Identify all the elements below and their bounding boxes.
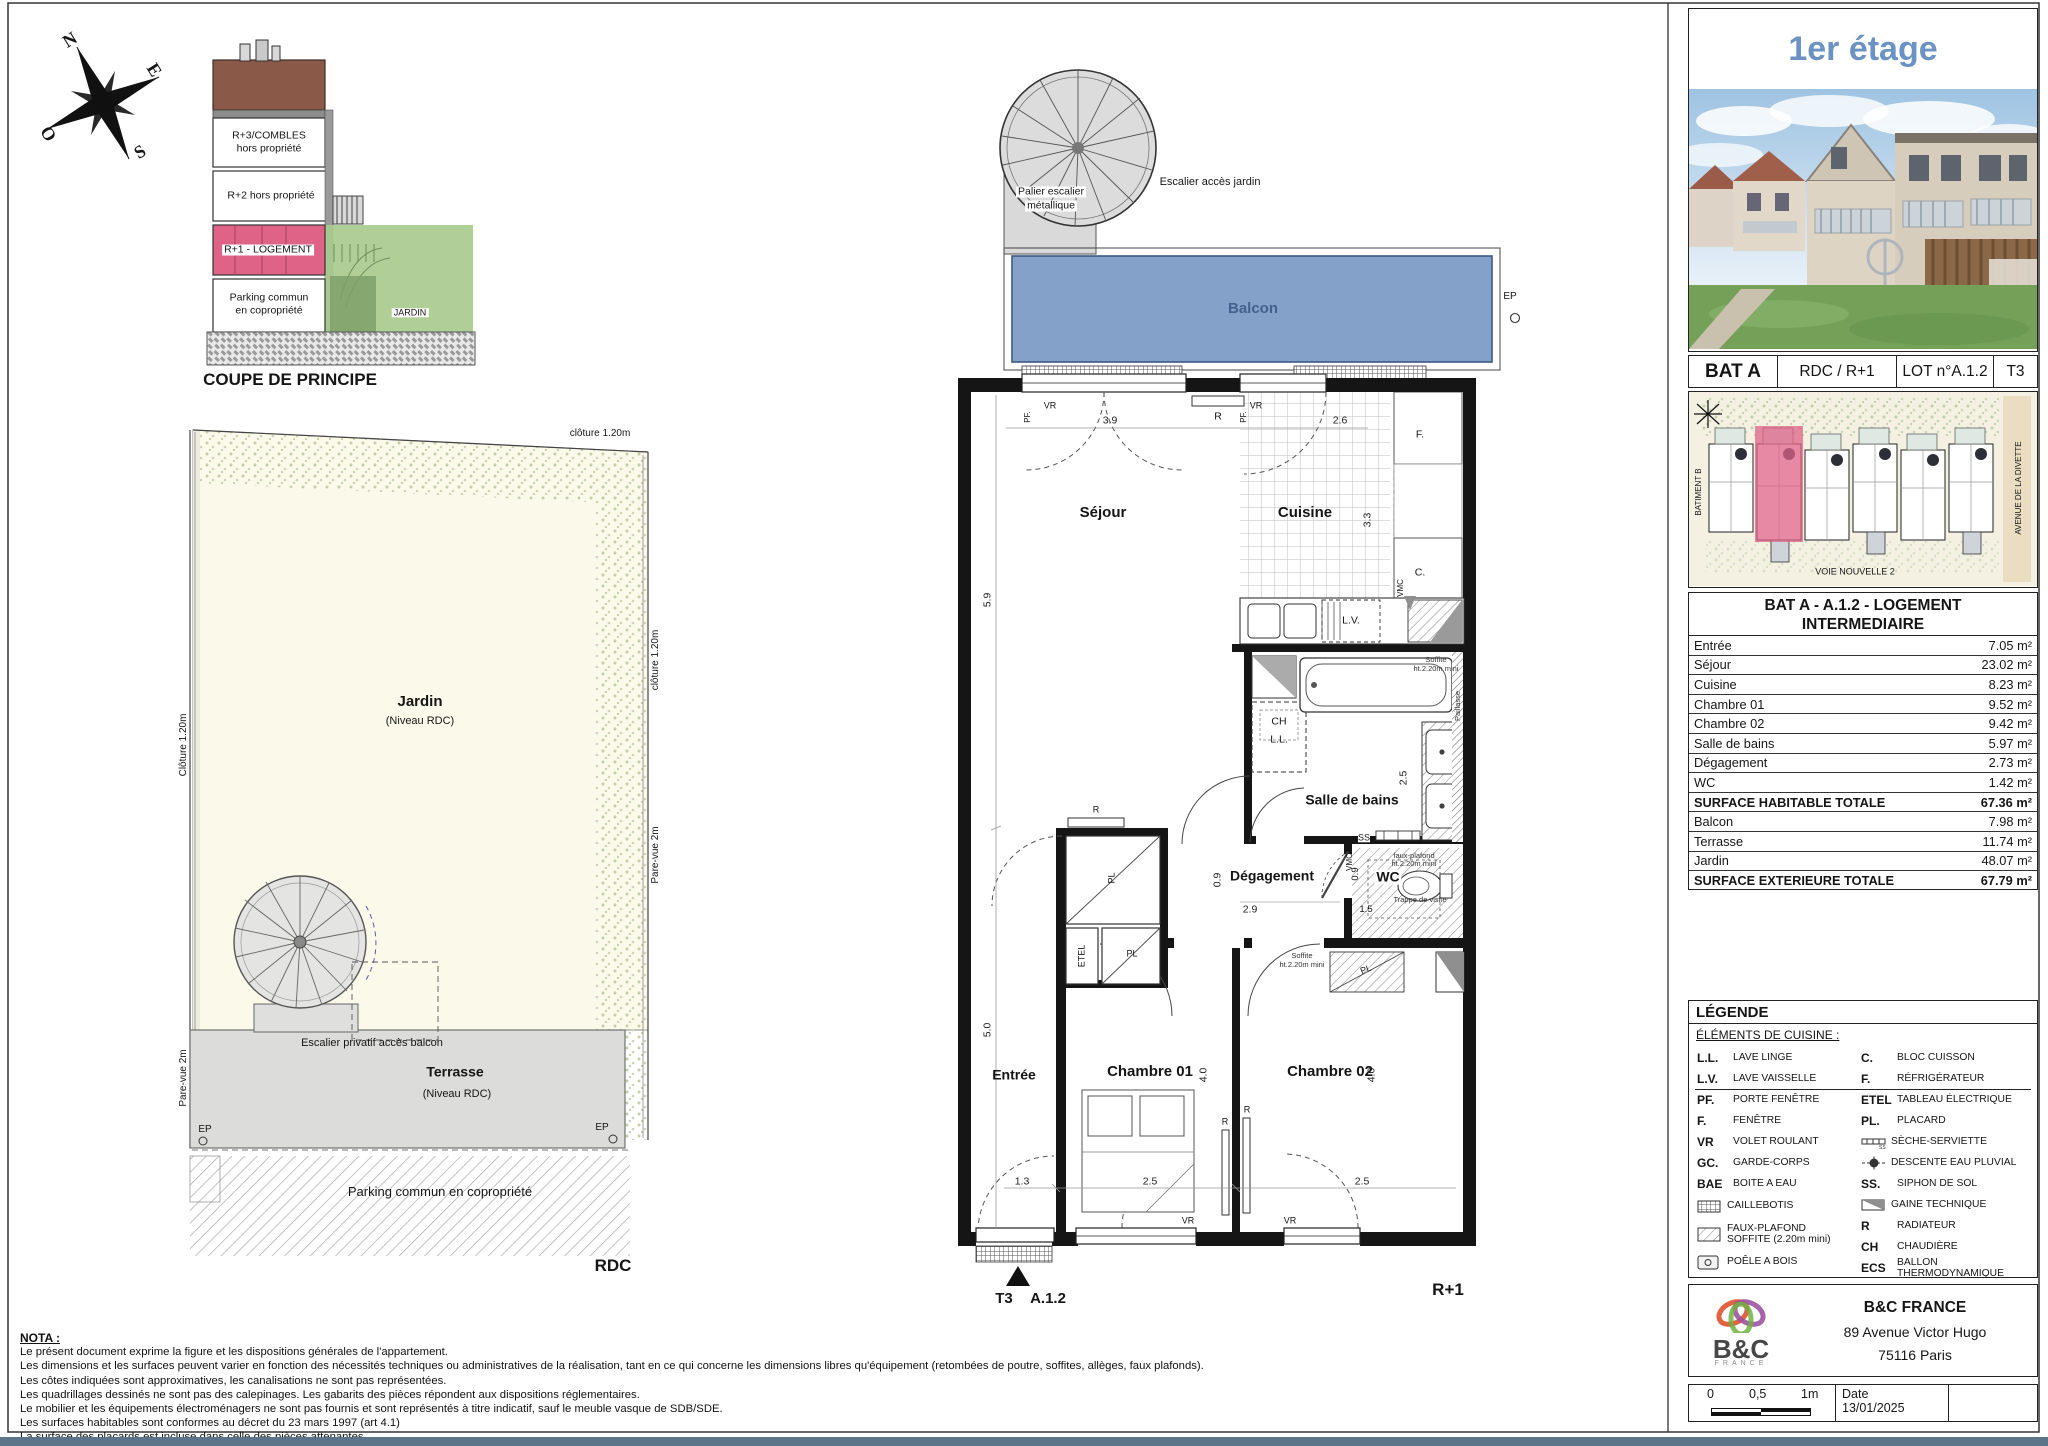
plan-ep-label: EP: [1503, 292, 1516, 303]
legend-abbr: F.: [1861, 1072, 1897, 1086]
legend-abbr: PF.: [1697, 1093, 1733, 1107]
legend-abbr: ECS: [1861, 1261, 1897, 1275]
plan-balcon-label: Balcon: [1228, 301, 1278, 317]
room-cuisine: Cuisine: [1278, 505, 1332, 521]
dim-cuisine-w: 2.6: [1333, 415, 1348, 426]
garden-ep-left: EP: [198, 1125, 211, 1136]
table-row: Dégagement2.73 m²: [1689, 754, 2037, 774]
dim-entree-h: 5.0: [982, 1023, 993, 1038]
dim-ch2-h: 4.0: [1366, 1068, 1377, 1083]
scale-bar-cell: 0 0,5 1m: [1689, 1385, 1836, 1421]
caillebotis-icon: [1697, 1200, 1727, 1213]
empty-cell: [1949, 1385, 2037, 1421]
table-row: Chambre 019.52 m²: [1689, 695, 2037, 715]
site-plan-box: BATIMENT B AVENUE DE LA DIVETTE VOIE NOU…: [1688, 391, 2038, 588]
dim-ch1-h: 4.0: [1198, 1068, 1209, 1083]
legend-item: DESCENTE EAU PLUVIAL: [1861, 1152, 2033, 1173]
garden-jardin-title: Jardin: [397, 694, 442, 710]
table-row: Jardin48.07 m²: [1689, 852, 2037, 872]
coupe-parking-line2: en copropriété: [235, 305, 302, 316]
row-value: 67.36 m²: [1981, 795, 2032, 810]
company-box: B&C FRANCE B&C FRANCE 89 Avenue Victor H…: [1688, 1284, 2038, 1377]
company-city: 75116 Paris: [1793, 1347, 2037, 1363]
table-row-total-exterieure: SURFACE EXTERIEURE TOTALE67.79 m²: [1689, 871, 2037, 891]
bc-logo-sub: FRANCE: [1689, 1360, 1793, 1367]
tag-vmc-wc: VMC: [1346, 853, 1354, 871]
tag-r-ch02: R: [1244, 1105, 1251, 1114]
room-chambre01: Chambre 01: [1107, 1064, 1193, 1080]
legend-item: PF.PORTE FENÊTRE: [1697, 1089, 1857, 1110]
garden-terrasse-sub: (Niveau RDC): [423, 1089, 491, 1101]
legend-title: LÉGENDE: [1689, 1001, 2037, 1024]
legend-abbr: VR: [1697, 1135, 1733, 1149]
coupe-r3-line2: hors propriété: [237, 143, 302, 154]
garden-terrasse-title: Terrasse: [426, 1065, 483, 1080]
type-label: T3: [1994, 356, 2037, 387]
legend-label: PORTE FENÊTRE: [1733, 1094, 1819, 1105]
tag-lv: L.V.: [1342, 615, 1360, 626]
scale-05: 0,5: [1749, 1387, 1766, 1401]
compass-icon: [47, 47, 159, 159]
plan-palier-line1: Palier escalier: [1016, 186, 1086, 197]
nota-block: NOTA : Le présent document exprime la fi…: [20, 1331, 1650, 1445]
tag-vmc-cuisine: VMC: [1397, 579, 1405, 597]
garden-parevue-left: Pare-vue 2m: [179, 1049, 190, 1106]
note-fauxplafond-2: ht.2.20m mini: [1391, 860, 1436, 868]
legend-item: BAEBOITE A EAU: [1697, 1173, 1857, 1194]
room-chambre02: Chambre 02: [1287, 1064, 1373, 1080]
row-label: Terrasse: [1694, 834, 1743, 849]
scale-bar: [1711, 1408, 1811, 1416]
legend-label: CAILLEBOTIS: [1727, 1200, 1793, 1211]
tag-vr-cuisine: VR: [1250, 401, 1263, 410]
coupe-r1: R+1 - LOGEMENT: [222, 244, 314, 255]
plan-escalier-jardin: Escalier accès jardin: [1160, 177, 1261, 189]
legend-label: DESCENTE EAU PLUVIAL: [1891, 1157, 2016, 1168]
coupe-parking-line1: Parking commun: [230, 292, 309, 303]
site-avenue: AVENUE DE LA DIVETTE: [2015, 441, 2023, 534]
tag-f-frigo: F.: [1416, 429, 1424, 440]
legend-box: LÉGENDE ÉLÉMENTS DE CUISINE : L.L.LAVE L…: [1688, 1000, 2038, 1278]
surface-table-title-2: INTERMEDIAIRE: [1689, 615, 2037, 634]
legend-label: VOLET ROULANT: [1733, 1136, 1819, 1147]
dim-sdb-h: 2.5: [1398, 771, 1409, 786]
legend-item: F.FENÊTRE: [1697, 1110, 1857, 1131]
garden-plan: [190, 430, 648, 1256]
row-value: 48.07 m²: [1981, 853, 2032, 868]
legend-item: CHCHAUDIÈRE: [1861, 1236, 2033, 1257]
gaine-technique-icon: [1861, 1198, 1891, 1212]
legend-abbr: L.L.: [1697, 1051, 1733, 1065]
row-label: Cuisine: [1694, 677, 1737, 692]
note-soffite-pl-2: ht.2.20m mini: [1279, 961, 1324, 969]
garden-stair-label: Escalier privatif accès balcon: [301, 1038, 443, 1050]
dim-degagement-w: 2.9: [1243, 904, 1258, 915]
row-label: Jardin: [1694, 853, 1729, 868]
nota-line: Les dimensions et les surfaces peuvent v…: [20, 1359, 1650, 1373]
bc-logo-text: B&C: [1689, 1338, 1793, 1360]
company-name: B&C FRANCE: [1793, 1299, 2037, 1317]
legend-item: PL.PLACARD: [1861, 1110, 2033, 1131]
legend-label: FENÊTRE: [1733, 1115, 1781, 1126]
table-row: Salle de bains5.97 m²: [1689, 734, 2037, 754]
legend-label: GARDE-CORPS: [1733, 1157, 1810, 1168]
date-label: Date: [1842, 1387, 1942, 1401]
legend-abbr: L.V.: [1697, 1072, 1733, 1086]
dim-sejour-w: 3.9: [1103, 415, 1118, 426]
tag-c-cuisson: C.: [1415, 567, 1426, 578]
garden-fence-top: clôture 1.20m: [570, 429, 631, 440]
legend-label: POÊLE A BOIS: [1727, 1256, 1797, 1267]
surface-table-title-1: BAT A - A.1.2 - LOGEMENT: [1689, 596, 2037, 615]
svg-text:SS: SS: [1879, 1145, 1886, 1149]
garden-fence-left: Clôture 1.20m: [179, 714, 190, 777]
garden-ep-right: EP: [595, 1123, 608, 1134]
legend-label: CHAUDIÈRE: [1897, 1241, 1958, 1252]
tag-r-sejour: R: [1214, 411, 1222, 422]
legend-abbr: SS.: [1861, 1177, 1897, 1191]
table-row-total-habitable: SURFACE HABITABLE TOTALE67.36 m²: [1689, 793, 2037, 813]
coupe-r3-line1: R+3/COMBLES: [232, 130, 306, 141]
date-value: 13/01/2025: [1842, 1401, 1942, 1415]
legend-label: RÉFRIGÉRATEUR: [1897, 1073, 1984, 1084]
bc-logo-knot-icon: [1709, 1295, 1773, 1333]
scale-1m: 1m: [1801, 1387, 1818, 1401]
page-title: 1er étage: [1689, 9, 2037, 89]
company-logo: B&C FRANCE: [1689, 1295, 1793, 1367]
legend-abbr: BAE: [1697, 1177, 1733, 1191]
legend-abbr: ETEL: [1861, 1093, 1897, 1107]
nota-line: Le présent document exprime la figure et…: [20, 1345, 1650, 1359]
nota-line: Le mobilier et les équipements électromé…: [20, 1402, 1650, 1416]
row-value: 7.05 m²: [1989, 638, 2032, 653]
row-value: 9.52 m²: [1989, 697, 2032, 712]
legend-abbr: GC.: [1697, 1156, 1733, 1170]
legend-label: BALLON THERMODYNAMIQUE: [1897, 1257, 2033, 1280]
row-label: Balcon: [1694, 814, 1733, 829]
legend-left-column: L.L.LAVE LINGE L.V.LAVE VAISSELLE PF.POR…: [1697, 1047, 1857, 1274]
room-sejour: Séjour: [1080, 505, 1127, 521]
coupe-r2: R+2 hors propriété: [227, 190, 314, 201]
row-value: 9.42 m²: [1989, 716, 2032, 731]
table-row: Cuisine8.23 m²: [1689, 675, 2037, 695]
legend-label: RADIATEUR: [1897, 1220, 1956, 1231]
garden-jardin-sub: (Niveau RDC): [386, 716, 454, 728]
tag-pf-sejour: PF.: [1024, 411, 1032, 423]
row-value: 1.42 m²: [1989, 775, 2032, 790]
legend-label: LAVE LINGE: [1733, 1052, 1792, 1063]
levels-label: RDC / R+1: [1778, 356, 1897, 387]
note-soffite-bath-1: Soffite: [1425, 656, 1446, 664]
legend-item: L.L.LAVE LINGE: [1697, 1047, 1857, 1068]
marker-lot: A.1.2: [1030, 1291, 1066, 1307]
table-row: Balcon7.98 m²: [1689, 812, 2037, 832]
legend-item: GAINE TECHNIQUE: [1861, 1194, 2033, 1215]
unit-id-row: BAT A RDC / R+1 LOT n°A.1.2 T3: [1688, 355, 2038, 388]
scale-0: 0: [1707, 1387, 1714, 1401]
nota-line: Les surfaces habitables sont conformes a…: [20, 1416, 1650, 1430]
legend-label: TABLEAU ÉLECTRIQUE: [1897, 1094, 2012, 1105]
dim-entree-w: 1.3: [1015, 1176, 1030, 1187]
note-soffite-bath-2: ht.2.20m mini: [1413, 665, 1458, 673]
site-batiment-b: BATIMENT B: [1695, 468, 1703, 515]
legend-label: SIPHON DE SOL: [1897, 1178, 1977, 1189]
legend-item: SS SÈCHE-SERVIETTE: [1861, 1131, 2033, 1152]
legend-item: ECSBALLON THERMODYNAMIQUE: [1861, 1257, 2033, 1280]
tag-r-ch01: R: [1222, 1117, 1229, 1126]
legend-label: BOITE A EAU: [1733, 1178, 1797, 1189]
bottom-bar: [0, 1437, 2048, 1446]
table-row: Entrée7.05 m²: [1689, 636, 2037, 656]
nota-line: Les côtes indiquées sont approximatives,…: [20, 1374, 1650, 1388]
facade-photo: [1689, 89, 2037, 349]
legend-abbr: CH: [1861, 1240, 1897, 1254]
row-label: Séjour: [1694, 657, 1731, 672]
legend-item: ETELTABLEAU ÉLECTRIQUE: [1861, 1089, 2033, 1110]
floor-plan: [958, 70, 1520, 1286]
table-row: WC1.42 m²: [1689, 773, 2037, 793]
row-label: Salle de bains: [1694, 736, 1774, 751]
dim-sejour-h: 5.9: [982, 593, 993, 608]
row-value: 5.97 m²: [1989, 736, 2032, 751]
legend-abbr: R: [1861, 1219, 1897, 1233]
legend-item: C.BLOC CUISSON: [1861, 1047, 2033, 1068]
row-value: 11.74 m²: [1982, 834, 2032, 849]
site-voie: VOIE NOUVELLE 2: [1815, 567, 1895, 576]
note-paillasse: Paillasse: [1454, 691, 1462, 721]
tag-ll-lavelinge: L.L.: [1270, 734, 1288, 745]
tag-ss: SS: [1358, 833, 1370, 842]
coupe-caption: COUPE DE PRINCIPE: [203, 371, 377, 389]
legend-abbr: C.: [1861, 1051, 1897, 1065]
legend-item: POÊLE A BOIS: [1697, 1250, 1857, 1274]
dim-cuisine-h: 3.3: [1362, 513, 1373, 528]
room-entree: Entrée: [992, 1068, 1036, 1083]
seche-serviette-icon: SS: [1861, 1135, 1891, 1149]
row-value: 8.23 m²: [1989, 677, 2032, 692]
legend-label: BLOC CUISSON: [1897, 1052, 1975, 1063]
room-wc: WC: [1374, 870, 1401, 885]
room-degagement: Dégagement: [1230, 869, 1314, 884]
row-label: Entrée: [1694, 638, 1732, 653]
scale-date-row: 0 0,5 1m Date 13/01/2025: [1688, 1384, 2038, 1422]
faux-plafond-icon: [1697, 1227, 1727, 1242]
table-row: Chambre 029.42 m²: [1689, 714, 2037, 734]
legend-label: SÈCHE-SERVIETTE: [1891, 1136, 1987, 1147]
tag-pl-closet2: PL: [1126, 949, 1137, 958]
legend-right-column: C.BLOC CUISSON F.RÉFRIGÉRATEUR ETELTABLE…: [1861, 1047, 2033, 1280]
legend-abbr: PL.: [1861, 1114, 1897, 1128]
dim-ch2-w: 2.5: [1355, 1176, 1370, 1187]
note-soffite-pl-1: Soffite: [1291, 952, 1312, 960]
legend-label: GAINE TECHNIQUE: [1891, 1199, 1986, 1210]
nota-title: NOTA :: [20, 1331, 1650, 1345]
panel-title-box: 1er étage: [1688, 8, 2038, 352]
dim-ch1-w: 2.5: [1143, 1176, 1158, 1187]
tag-vr-sejour: VR: [1044, 401, 1057, 410]
note-trappe: Trappe de visite: [1393, 896, 1446, 904]
row-label: Chambre 02: [1694, 716, 1764, 731]
surface-table: BAT A - A.1.2 - LOGEMENT INTERMEDIAIRE E…: [1688, 592, 2038, 890]
legend-item: SS.SIPHON DE SOL: [1861, 1173, 2033, 1194]
company-address: 89 Avenue Victor Hugo: [1793, 1324, 2037, 1340]
lot-label: LOT n°A.1.2: [1897, 356, 1994, 387]
legend-label: FAUX-PLAFOND SOFFITE (2.20m mini): [1727, 1223, 1839, 1246]
row-value: 67.79 m²: [1981, 873, 2032, 888]
tag-vr-ch01: VR: [1182, 1216, 1195, 1225]
garden-parevue-right: Pare-vue 2m: [651, 826, 662, 883]
legend-label: LAVE VAISSELLE: [1733, 1073, 1816, 1084]
row-label: SURFACE EXTERIEURE TOTALE: [1694, 873, 1894, 888]
tag-ch-chaudiere: CH: [1271, 716, 1286, 727]
garden-level-label: RDC: [595, 1257, 632, 1275]
garden-fence-right: clôture 1.20m: [651, 630, 662, 691]
tag-vr-ch02: VR: [1284, 1216, 1297, 1225]
legend-item: CAILLEBOTIS: [1697, 1194, 1857, 1218]
legend-item: FAUX-PLAFOND SOFFITE (2.20m mini): [1697, 1218, 1857, 1250]
legend-item: L.V.LAVE VAISSELLE: [1697, 1068, 1857, 1089]
tag-etel: ETEL: [1077, 945, 1086, 968]
date-cell: Date 13/01/2025: [1836, 1385, 1949, 1421]
row-label: Dégagement: [1694, 755, 1767, 770]
dim-wc-w: 1.5: [1359, 905, 1372, 915]
nota-line: Les quadrillages dessinés ne sont pas de…: [20, 1388, 1650, 1402]
legend-item: VRVOLET ROULANT: [1697, 1131, 1857, 1152]
dim-degagement-h: 0.9: [1212, 873, 1223, 888]
room-sdb: Salle de bains: [1303, 793, 1400, 808]
row-value: 7.98 m²: [1989, 814, 2032, 829]
legend-kitchen-header: ÉLÉMENTS DE CUISINE :: [1689, 1024, 2037, 1043]
descente-eau-pluviale-icon: [1861, 1156, 1891, 1170]
tag-r-closet: R: [1093, 805, 1100, 814]
row-value: 23.02 m²: [1981, 657, 2032, 672]
tag-pf-cuisine: PF.: [1240, 411, 1248, 423]
tag-pl-closet1: PL: [1107, 872, 1116, 883]
garden-parking-label: Parking commun en copropriété: [348, 1185, 532, 1199]
site-plan: [1689, 392, 2037, 586]
table-row: Séjour23.02 m²: [1689, 656, 2037, 676]
row-value: 2.73 m²: [1989, 755, 2032, 770]
coupe-jardin: JARDIN: [392, 308, 429, 317]
legend-abbr: F.: [1697, 1114, 1733, 1128]
marker-type: T3: [995, 1291, 1013, 1307]
legend-item: RRADIATEUR: [1861, 1215, 2033, 1236]
legend-label: PLACARD: [1897, 1115, 1946, 1126]
table-row: Terrasse11.74 m²: [1689, 832, 2037, 852]
poele-a-bois-icon: [1697, 1255, 1727, 1270]
bat-label: BAT A: [1689, 356, 1778, 387]
row-label: Chambre 01: [1694, 697, 1764, 712]
row-label: WC: [1694, 775, 1715, 790]
row-label: SURFACE HABITABLE TOTALE: [1694, 795, 1885, 810]
plan-sheet: { "colors": { "accent_blue": "#6b92c3", …: [0, 0, 2048, 1446]
plan-level-label: R+1: [1432, 1281, 1464, 1299]
legend-item: F.RÉFRIGÉRATEUR: [1861, 1068, 2033, 1089]
plan-palier-line2: métallique: [1025, 200, 1077, 211]
legend-item: GC.GARDE-CORPS: [1697, 1152, 1857, 1173]
